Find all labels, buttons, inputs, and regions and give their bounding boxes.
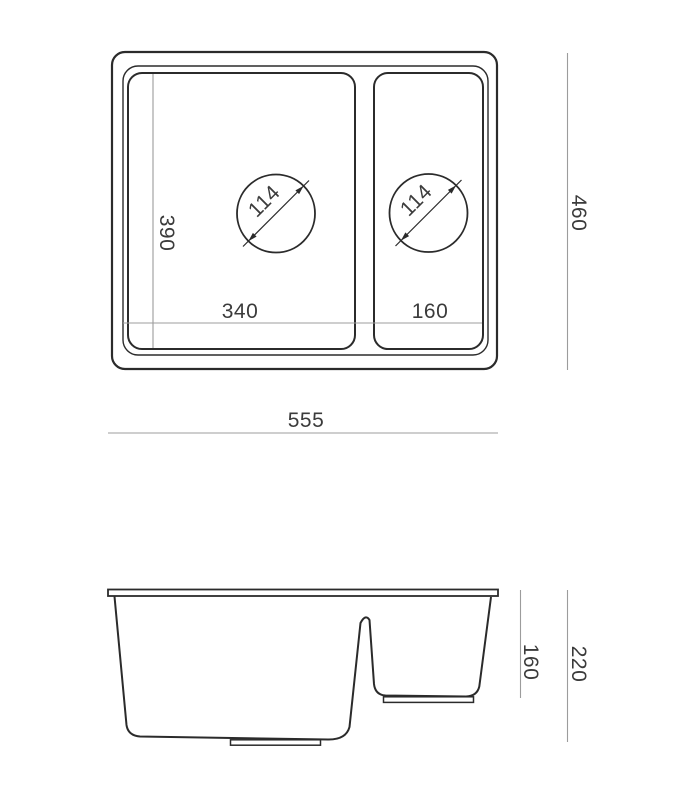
half-drain-diameter-label: 114 [396, 180, 437, 221]
overall-width-label: 555 [288, 409, 325, 432]
overall-height-label: 220 [567, 646, 590, 683]
side-rim-flange [108, 590, 498, 597]
main-bowl-width-label: 340 [222, 300, 259, 323]
half-bowl-width-label: 160 [412, 300, 449, 323]
overall-depth-label: 460 [567, 195, 590, 232]
main-drain-diameter-label: 114 [244, 181, 285, 222]
sink-top-view: 390 114 114 340 160 460 555 [108, 52, 590, 433]
side-body-outline [115, 597, 492, 740]
bowl-inner-depth-label: 390 [155, 215, 178, 252]
drawing-canvas: 390 114 114 340 160 460 555 160 220 [0, 0, 683, 800]
sink-technical-drawing: 390 114 114 340 160 460 555 160 220 [0, 0, 683, 800]
half-bowl-foot [384, 697, 474, 703]
half-bowl-depth-label: 160 [519, 644, 542, 681]
main-bowl-foot [231, 740, 321, 745]
sink-side-view: 160 220 [108, 590, 590, 746]
